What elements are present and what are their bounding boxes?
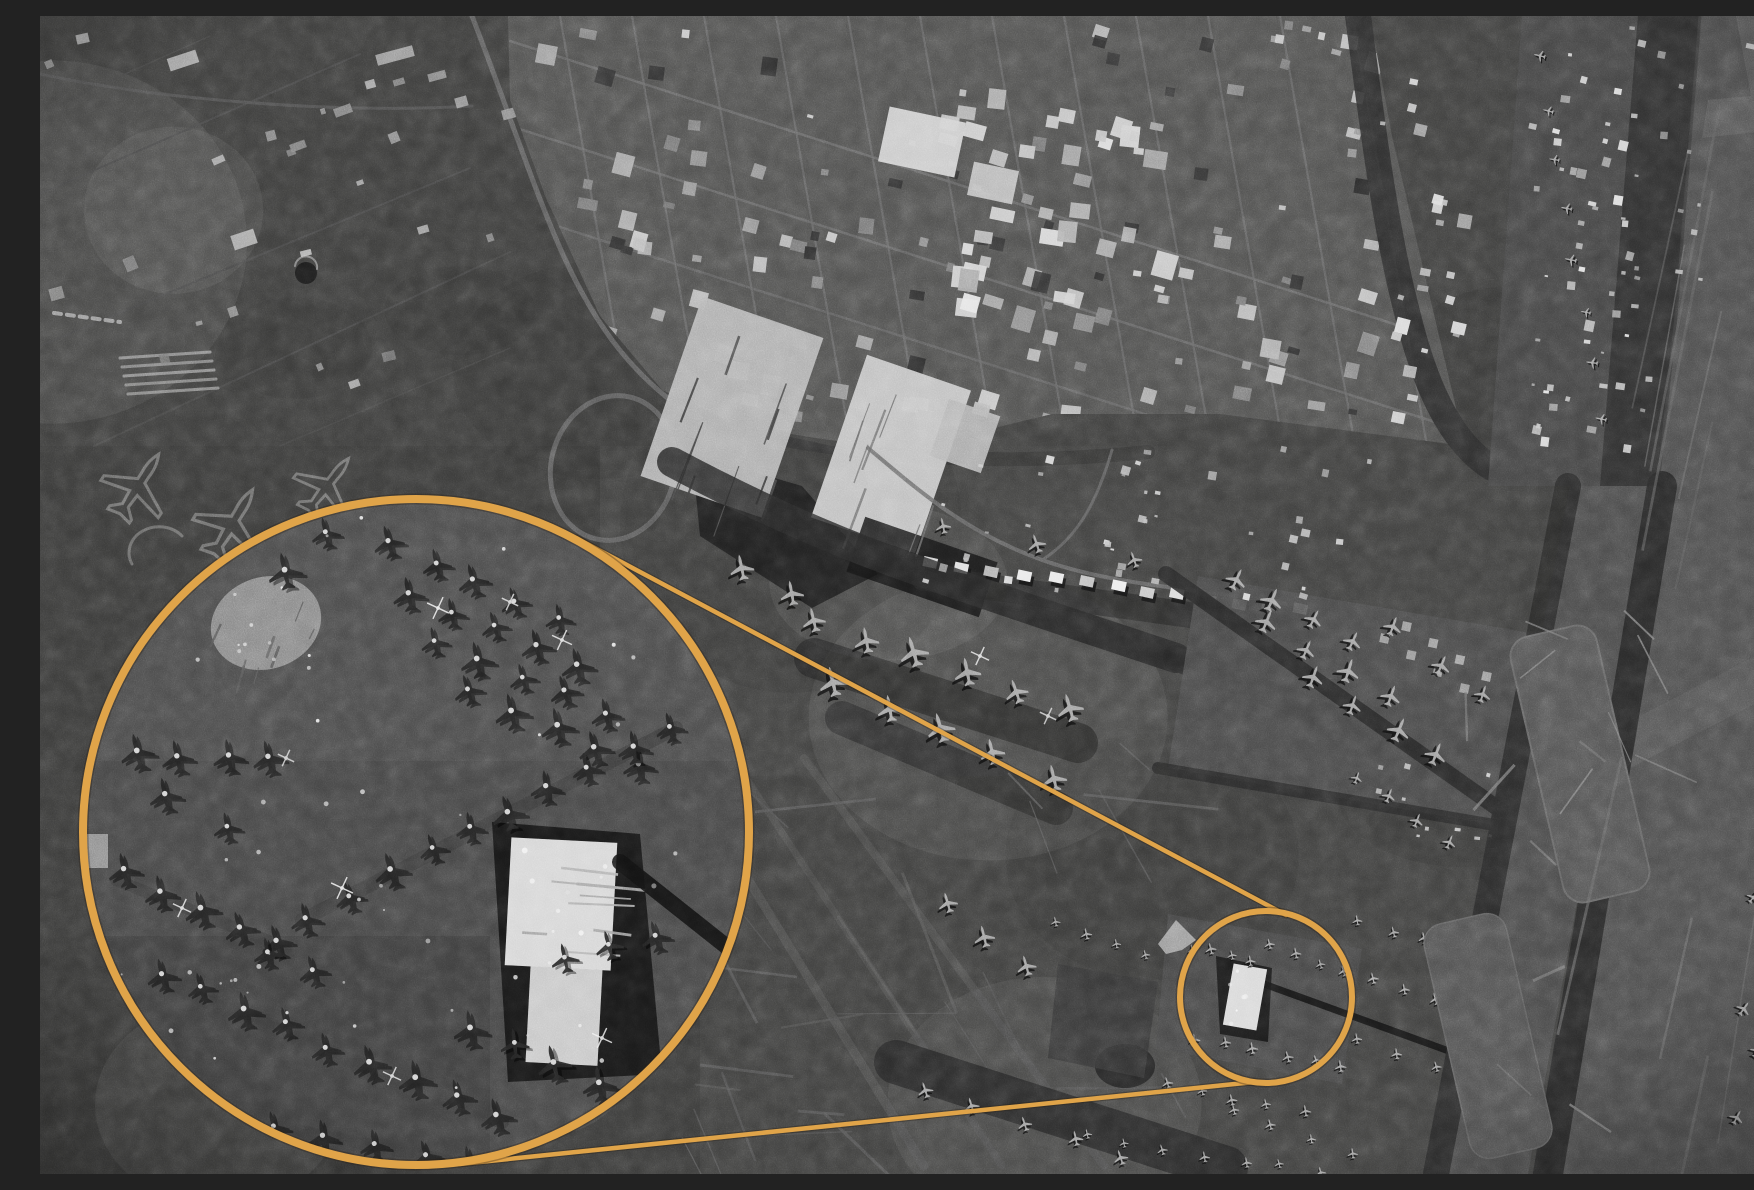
scene-root — [40, 16, 1754, 1174]
scene-canvas — [40, 16, 1754, 1174]
sar-satellite-screenshot — [40, 16, 1754, 1174]
vignette — [40, 16, 1754, 1174]
fill-rect — [40, 16, 1754, 1174]
